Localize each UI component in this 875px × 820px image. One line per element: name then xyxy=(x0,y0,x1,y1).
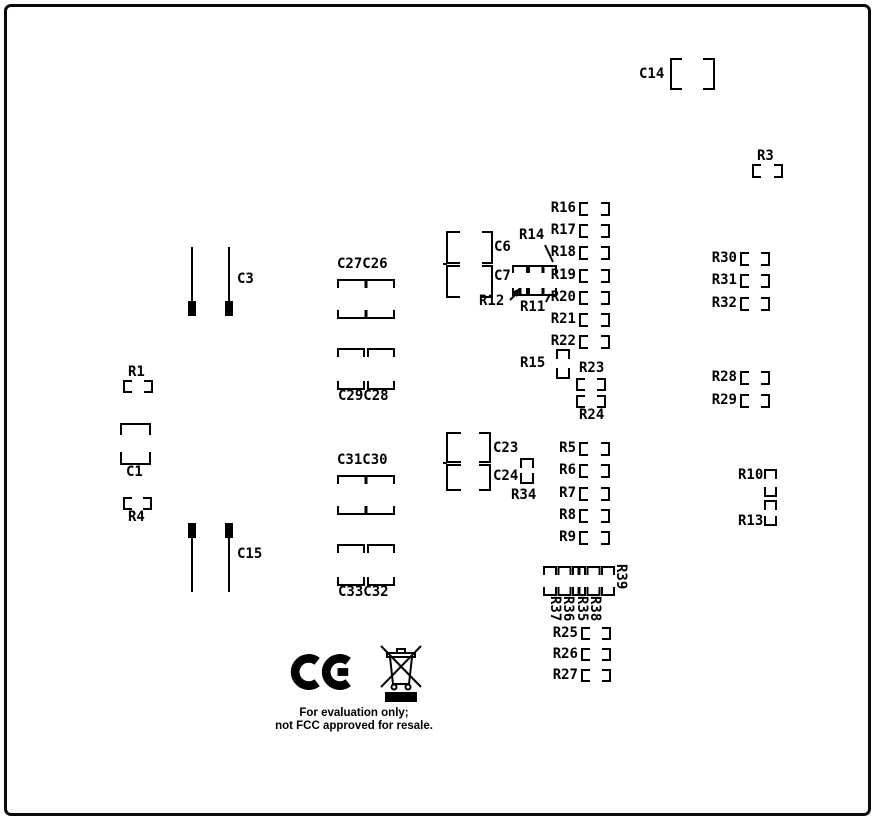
footprint-c23-c24 xyxy=(443,431,492,492)
refdes-r12: R12 xyxy=(479,295,504,308)
weee-bin-icon xyxy=(377,643,425,705)
footprint-r16 xyxy=(579,202,610,216)
footprint-c31c30-c33c32 xyxy=(337,474,396,586)
refdes-r28: R28 xyxy=(696,371,737,384)
refdes-r26: R26 xyxy=(537,648,578,661)
refdes-r7: R7 xyxy=(535,487,576,500)
footprint-r23 xyxy=(576,378,606,391)
evaluation-note-line1: For evaluation only; xyxy=(244,707,464,720)
footprint-r29 xyxy=(740,394,770,408)
refdes-c33c32: C33C32 xyxy=(338,586,389,599)
footprint-r21 xyxy=(579,313,610,327)
refdes-r22: R22 xyxy=(535,335,576,348)
footprint-r22 xyxy=(579,335,610,349)
refdes-c1: C1 xyxy=(126,466,143,479)
footprint-c15 xyxy=(191,523,193,592)
refdes-c3: C3 xyxy=(237,273,254,286)
footprint-r19 xyxy=(579,269,610,283)
footprint-r34 xyxy=(520,473,534,484)
refdes-r32: R32 xyxy=(696,297,737,310)
ce-mark-icon xyxy=(289,651,355,693)
footprint-r15 xyxy=(556,368,570,379)
refdes-c24: C24 xyxy=(493,470,518,483)
pad-c3 xyxy=(188,301,196,316)
footprint-r13 xyxy=(764,500,777,510)
footprint-r34 xyxy=(520,458,534,468)
footprint-c27c26-c29c28 xyxy=(337,278,396,390)
refdes-c27c26: C27C26 xyxy=(337,258,388,271)
refdes-c23: C23 xyxy=(493,442,518,455)
footprint-r7 xyxy=(579,487,610,501)
refdes-r31: R31 xyxy=(696,274,737,287)
pad-c3 xyxy=(225,301,233,316)
refdes-r30: R30 xyxy=(696,252,737,265)
footprint-r27 xyxy=(581,669,611,682)
footprint-r6 xyxy=(579,464,610,478)
footprint-r31 xyxy=(740,274,770,288)
pcb-silkscreen-drawing: C14 R3 C3 R1 C1 R4 C15 C27C26 C29C28 C31… xyxy=(0,0,875,820)
footprint-r28 xyxy=(740,371,770,385)
refdes-r19: R19 xyxy=(535,269,576,282)
refdes-c31c30: C31C30 xyxy=(337,454,388,467)
footprint-r26 xyxy=(581,648,611,661)
refdes-r3: R3 xyxy=(757,150,774,163)
footprint-r17 xyxy=(579,224,610,238)
refdes-c29c28: C29C28 xyxy=(338,390,389,403)
evaluation-note: For evaluation only; not FCC approved fo… xyxy=(244,707,464,733)
footprint-r5 xyxy=(579,442,610,456)
footprint-r13 xyxy=(764,516,777,526)
refdes-r17: R17 xyxy=(535,224,576,237)
refdes-r6: R6 xyxy=(535,464,576,477)
footprint-r35-r39 xyxy=(543,565,615,597)
refdes-r4: R4 xyxy=(128,511,145,524)
refdes-r29: R29 xyxy=(696,394,737,407)
footprint-r8 xyxy=(579,509,610,523)
footprint-r10 xyxy=(764,487,777,497)
footprint-c6-c7 xyxy=(443,230,493,299)
refdes-r23: R23 xyxy=(579,362,604,375)
footprint-r1 xyxy=(123,380,153,393)
refdes-r13: R13 xyxy=(738,515,763,528)
refdes-c15: C15 xyxy=(237,548,262,561)
refdes-r38: R38 xyxy=(588,596,601,621)
refdes-r21: R21 xyxy=(535,313,576,326)
footprint-c15 xyxy=(228,523,230,592)
refdes-r16: R16 xyxy=(535,202,576,215)
refdes-r24: R24 xyxy=(579,409,604,422)
footprint-r10 xyxy=(764,469,777,479)
refdes-r10: R10 xyxy=(738,469,763,482)
refdes-r1: R1 xyxy=(128,366,145,379)
footprint-c14 xyxy=(670,58,715,90)
footprint-r32 xyxy=(740,297,770,311)
refdes-r18: R18 xyxy=(535,246,576,259)
refdes-r25: R25 xyxy=(537,627,578,640)
footprint-r15 xyxy=(556,349,570,359)
footprint-r25 xyxy=(581,627,611,640)
footprint-r20 xyxy=(579,291,610,305)
refdes-r15: R15 xyxy=(520,357,545,370)
footprint-r18 xyxy=(579,246,610,260)
refdes-r36: R36 xyxy=(561,596,574,621)
refdes-r20: R20 xyxy=(535,291,576,304)
refdes-r34: R34 xyxy=(511,489,536,502)
refdes-r8: R8 xyxy=(535,509,576,522)
evaluation-note-line2: not FCC approved for resale. xyxy=(244,720,464,733)
board-outline xyxy=(4,4,871,816)
refdes-c14: C14 xyxy=(639,68,664,81)
refdes-r39: R39 xyxy=(614,564,627,589)
refdes-r5: R5 xyxy=(535,442,576,455)
footprint-c1 xyxy=(120,423,151,435)
footprint-r3 xyxy=(752,164,783,178)
refdes-r9: R9 xyxy=(535,531,576,544)
footprint-r30 xyxy=(740,252,770,266)
refdes-r27: R27 xyxy=(537,669,578,682)
footprint-r9 xyxy=(579,531,610,545)
